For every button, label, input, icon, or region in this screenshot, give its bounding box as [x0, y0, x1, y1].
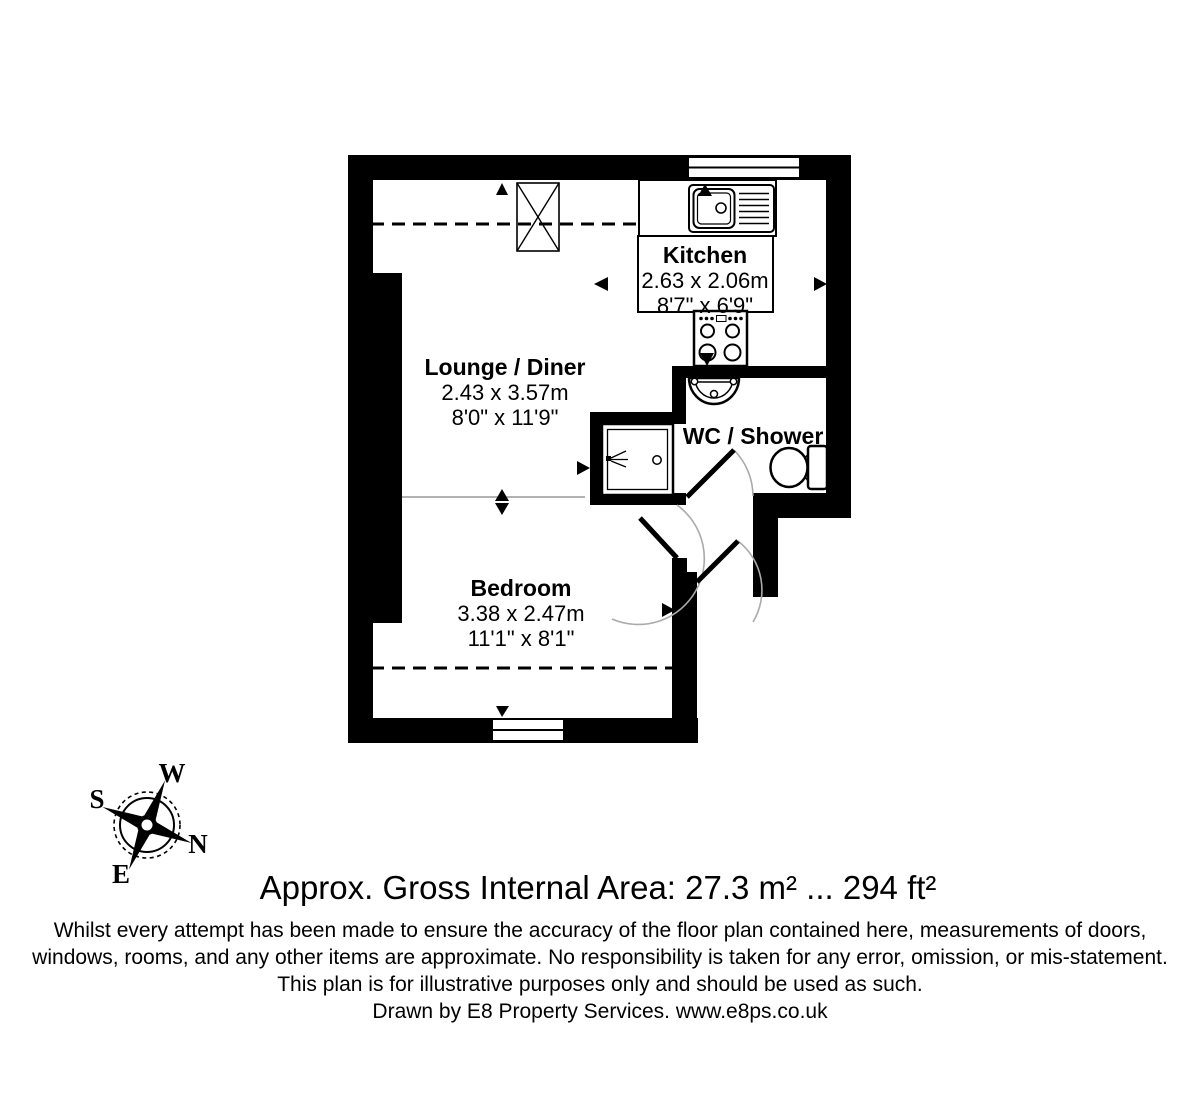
arrow-kitchen-left — [594, 277, 608, 291]
window-kitchen — [688, 157, 800, 178]
kitchen-name: Kitchen — [641, 243, 768, 268]
partition-kitchen-wc — [672, 366, 826, 378]
room-label-lounge: Lounge / Diner 2.43 x 3.57m 8'0" x 11'9" — [425, 355, 586, 430]
floorplan-page: W S N E Kitchen 2.63 x 2.06m 8'7" x 6'9"… — [0, 0, 1200, 1113]
wall-entry-jamb — [753, 493, 778, 597]
wall-bedroom-right — [672, 572, 697, 743]
kitchen-imperial: 8'7" x 6'9" — [641, 293, 768, 318]
bedroom-metric: 3.38 x 2.47m — [457, 601, 584, 626]
partition-shower-top — [590, 412, 686, 424]
room-label-kitchen: Kitchen 2.63 x 2.06m 8'7" x 6'9" — [641, 243, 768, 318]
hob-icon — [694, 311, 747, 366]
kitchen-metric: 2.63 x 2.06m — [641, 268, 768, 293]
entry-door-leaf-1 — [640, 518, 677, 558]
wall-right — [826, 155, 851, 518]
bedroom-name: Bedroom — [457, 576, 584, 601]
basin-icon — [689, 378, 739, 404]
compass-label-east: E — [112, 859, 130, 889]
arrow-lounge-top — [496, 183, 508, 195]
window-bedroom — [492, 719, 564, 741]
compass-rose-icon: W S N E — [89, 758, 208, 889]
arrow-kitchen-right — [814, 277, 827, 291]
wall-left-pillar — [371, 273, 402, 623]
wc-door-arc — [734, 450, 753, 496]
skylight-icon — [517, 183, 559, 251]
toilet-icon — [771, 446, 828, 489]
arrow-mid-down — [495, 503, 509, 515]
arrow-bedroom-bottom — [496, 706, 509, 717]
wall-left — [348, 155, 373, 743]
bedroom-imperial: 11'1" x 8'1" — [457, 626, 584, 651]
arrow-lounge-right — [577, 461, 590, 475]
walls — [348, 155, 851, 743]
lounge-metric: 2.43 x 3.57m — [425, 380, 586, 405]
shower-icon — [602, 424, 673, 495]
disclaimer-line-2: windows, rooms, and any other items are … — [32, 944, 1168, 971]
wall-bedroom-right-notch — [672, 558, 687, 574]
compass-label-west: W — [159, 758, 186, 788]
compass-label-north: N — [188, 829, 208, 859]
wc-door-leaf — [687, 450, 734, 497]
lounge-name: Lounge / Diner — [425, 355, 586, 380]
disclaimer-line-1: Whilst every attempt has been made to en… — [54, 917, 1147, 944]
compass-label-south: S — [89, 784, 104, 814]
partition-shower-left — [590, 412, 602, 495]
arrow-mid-up — [495, 489, 509, 501]
credit-line: Drawn by E8 Property Services. www.e8ps.… — [372, 998, 827, 1025]
wc-name: WC / Shower — [683, 424, 824, 449]
room-label-bedroom: Bedroom 3.38 x 2.47m 11'1" x 8'1" — [457, 576, 584, 651]
disclaimer-line-3: This plan is for illustrative purposes o… — [277, 971, 923, 998]
room-label-wc: WC / Shower — [683, 424, 824, 449]
lounge-imperial: 8'0" x 11'9" — [425, 405, 586, 430]
gross-internal-area-text: Approx. Gross Internal Area: 27.3 m² ...… — [260, 868, 937, 908]
